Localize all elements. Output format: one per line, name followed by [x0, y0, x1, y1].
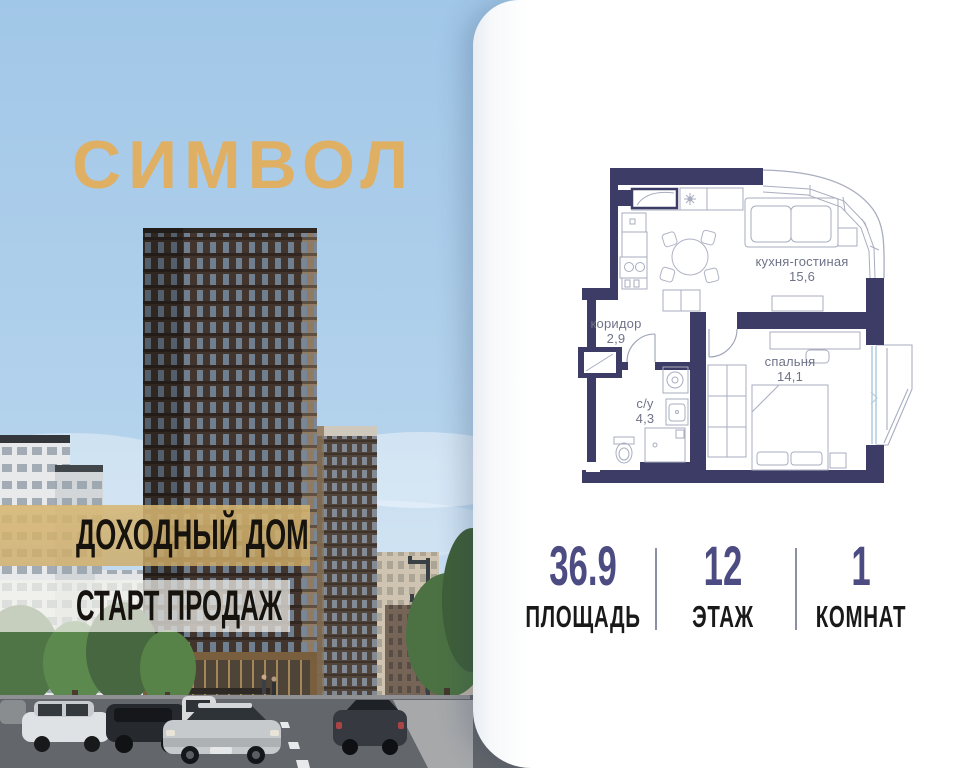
- promo-banner-1-text: ДОХОДНЫЙ ДОМ: [76, 505, 309, 566]
- room-name: коридор: [590, 316, 641, 331]
- brand-logo: СИМВОЛ: [72, 126, 415, 204]
- room-area: 15,6: [755, 269, 848, 284]
- room-area: 4,3: [636, 411, 655, 426]
- room-label-corridor: коридор 2,9: [590, 316, 641, 346]
- room-label-bedroom: спальня 14,1: [765, 354, 816, 384]
- balcony: [871, 345, 912, 445]
- room-name: с/у: [636, 396, 655, 411]
- info-panel: кухня-гостиная 15,6 коридор 2,9 с/у 4,3 …: [473, 0, 975, 768]
- door-arcs: [627, 329, 737, 362]
- stat-rooms-value: 1: [799, 538, 923, 594]
- listing-card[interactable]: СИМВОЛ ДОХОДНЫЙ ДОМ СТАРТ ПРОДАЖ: [0, 0, 975, 768]
- stat-rooms-label: КОМНАТ: [795, 602, 927, 632]
- promo-banner-2-text: СТАРТ ПРОДАЖ: [76, 580, 282, 632]
- room-name: спальня: [765, 354, 816, 369]
- room-area: 2,9: [590, 331, 641, 346]
- promo-banner-2: СТАРТ ПРОДАЖ: [0, 580, 290, 632]
- stat-rooms: 1 КОМНАТ: [761, 538, 961, 632]
- room-name: кухня-гостиная: [755, 254, 848, 269]
- hood-icon: [684, 193, 696, 205]
- room-area: 14,1: [765, 369, 816, 384]
- dining-table: [659, 230, 719, 284]
- room-label-kitchen-living: кухня-гостиная 15,6: [755, 254, 848, 284]
- bedroom-furniture: [708, 332, 860, 470]
- room-label-bathroom: с/у 4,3: [636, 396, 655, 426]
- promo-banner-1: ДОХОДНЫЙ ДОМ: [0, 505, 310, 566]
